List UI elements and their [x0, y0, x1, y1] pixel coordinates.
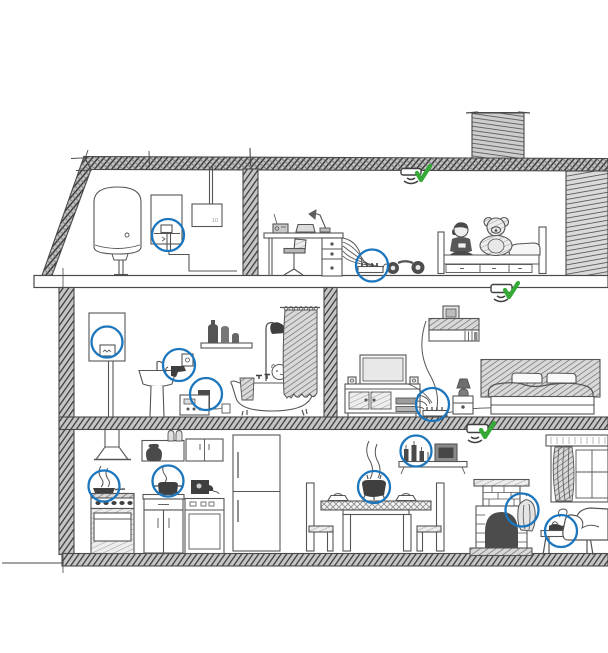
svg-text:10: 10 — [212, 218, 218, 224]
